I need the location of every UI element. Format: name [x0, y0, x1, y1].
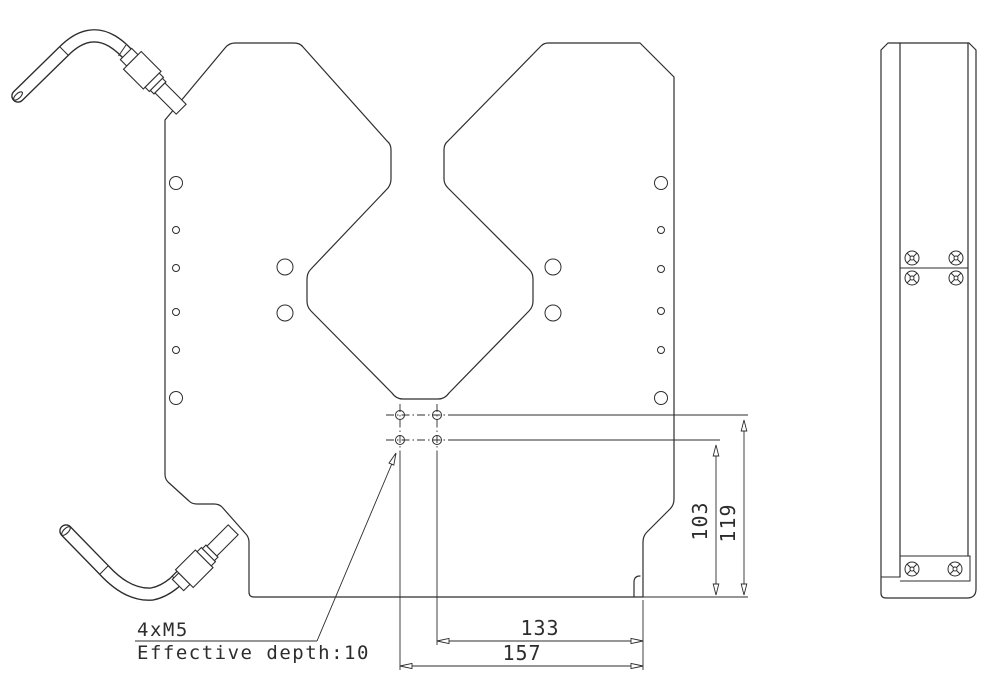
hole — [173, 309, 180, 316]
side-view — [881, 43, 976, 598]
connector-segment — [207, 525, 238, 556]
drawing-canvas: 103 119 133 157 4xM5 E — [0, 0, 1000, 697]
phillips-screw-icon — [905, 251, 919, 265]
dimension-value: 103 — [688, 501, 712, 540]
mounting-holes-right-column — [655, 177, 668, 405]
phillips-screw-icon — [949, 271, 963, 285]
arrowhead — [400, 663, 412, 668]
hole — [170, 392, 183, 405]
thread-note: 4xM5 Effective depth:10 — [135, 453, 396, 664]
phillips-screw-icon — [905, 271, 919, 285]
connector-bottom-left — [169, 521, 242, 594]
leader-line — [317, 454, 396, 641]
hole — [658, 227, 665, 234]
side-screws — [905, 251, 963, 576]
arrowhead — [389, 453, 396, 465]
hole — [655, 177, 668, 190]
dimension-value: 133 — [520, 616, 559, 640]
hole — [658, 347, 665, 354]
hole — [545, 305, 561, 321]
front-view: 103 119 133 157 4xM5 E — [12, 36, 748, 670]
technical-drawing: 103 119 133 157 4xM5 E — [0, 0, 1000, 697]
arrowhead — [631, 638, 643, 643]
hole — [277, 259, 293, 275]
hole — [277, 305, 293, 321]
plate-outline — [165, 43, 674, 597]
arrowhead — [631, 663, 643, 668]
arrowhead — [741, 584, 747, 595]
dimension-value: 157 — [502, 641, 541, 665]
dimension-value: 119 — [716, 503, 740, 542]
hole — [655, 392, 668, 405]
arrowhead — [437, 638, 449, 643]
hole — [545, 259, 561, 275]
dimension-119: 119 — [716, 420, 747, 595]
mounting-holes-inner-pairs — [277, 259, 561, 321]
m5-holes — [386, 404, 448, 452]
dimension-133: 133 — [437, 616, 643, 644]
phillips-screw-icon — [949, 251, 963, 265]
dimension-157: 157 — [400, 641, 643, 669]
extension-lines — [400, 415, 748, 670]
phillips-screw-icon — [905, 562, 919, 576]
thread-callout: 4xM5 — [137, 619, 189, 641]
hole — [658, 308, 665, 315]
dimension-103: 103 — [688, 445, 719, 595]
hole — [173, 265, 180, 272]
cable-top-left — [12, 36, 190, 118]
phillips-screw-icon — [948, 562, 962, 576]
hole — [658, 266, 665, 273]
hole — [170, 177, 183, 190]
arrowhead — [713, 445, 719, 456]
arrowhead — [713, 584, 719, 595]
hole — [173, 347, 180, 354]
hole — [173, 227, 180, 234]
plate-bottom-step — [634, 576, 640, 597]
depth-note: Effective depth:10 — [137, 642, 370, 664]
side-outline — [881, 43, 976, 598]
connector-top-left — [117, 45, 190, 118]
cable-bottom-left — [60, 521, 242, 594]
mounting-holes-left-column — [170, 177, 183, 405]
connector-segment — [155, 83, 186, 114]
arrowhead — [741, 420, 747, 431]
